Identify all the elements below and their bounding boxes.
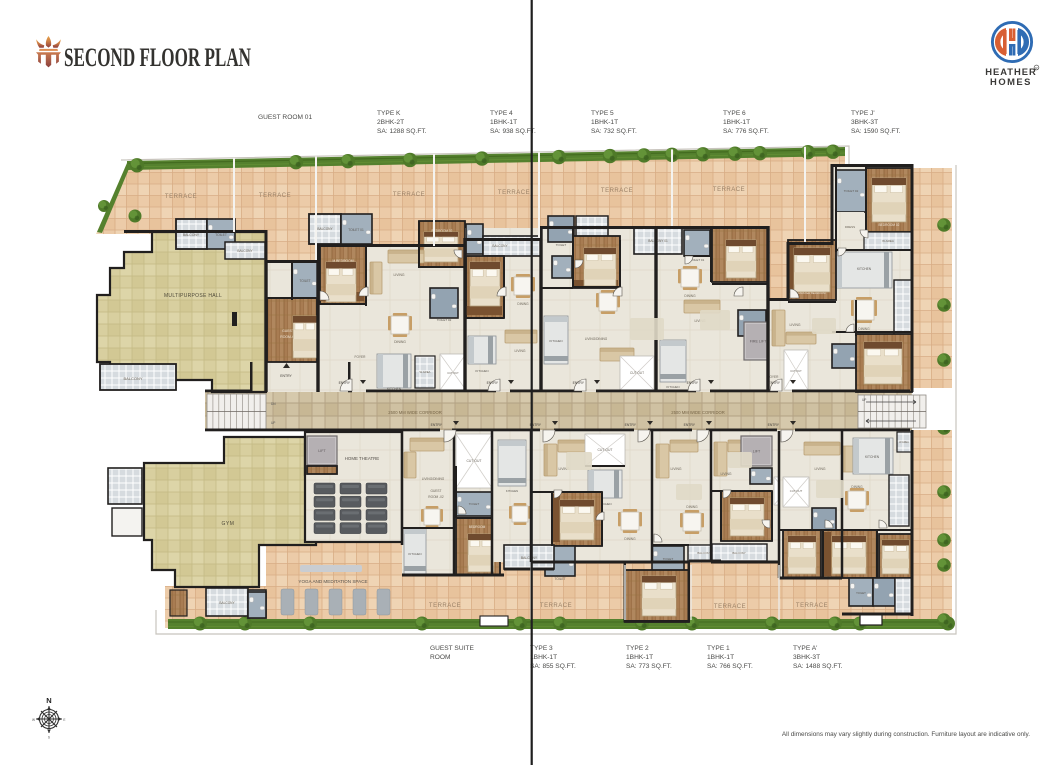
svg-text:SA: 938 SQ.FT.: SA: 938 SQ.FT. [490, 128, 536, 135]
svg-text:GUEST SUITE: GUEST SUITE [430, 645, 474, 652]
svg-text:TOILET 01: TOILET 01 [348, 228, 364, 232]
svg-text:W.AREA: W.AREA [899, 441, 909, 444]
svg-text:ROOM: ROOM [430, 654, 451, 661]
svg-text:TYPE A': TYPE A' [793, 645, 817, 652]
svg-text:TYPE 2: TYPE 2 [626, 645, 649, 652]
svg-text:TOILET 02: TOILET 02 [844, 189, 859, 193]
svg-text:ENTRY: ENTRY [687, 381, 699, 385]
svg-text:GYM: GYM [222, 521, 235, 527]
svg-text:GUEST: GUEST [431, 489, 442, 493]
svg-text:DINING: DINING [858, 327, 870, 331]
svg-text:BALCONY: BALCONY [521, 556, 538, 560]
svg-text:1BHK-1T: 1BHK-1T [626, 654, 653, 661]
svg-text:TERRACE: TERRACE [796, 603, 828, 609]
svg-text:ENTRY: ENTRY [768, 423, 780, 427]
svg-text:TERRACE: TERRACE [165, 194, 197, 200]
svg-text:CUT OUT: CUT OUT [597, 448, 612, 452]
svg-text:TOILET: TOILET [554, 577, 565, 581]
svg-text:GUEST: GUEST [282, 329, 294, 333]
svg-text:BALCONY: BALCONY [123, 376, 142, 381]
svg-text:UP: UP [271, 421, 275, 425]
svg-text:TOILET: TOILET [856, 591, 866, 595]
svg-text:LIVING: LIVING [814, 467, 825, 471]
svg-text:ENTRY: ENTRY [573, 381, 585, 385]
svg-text:SA: 1488 SQ.FT.: SA: 1488 SQ.FT. [793, 663, 843, 670]
svg-text:TYPE 3: TYPE 3 [530, 645, 553, 652]
svg-text:LIFT: LIFT [318, 449, 326, 453]
svg-text:3BHK-3T: 3BHK-3T [793, 654, 820, 661]
svg-text:ENTRY: ENTRY [684, 423, 696, 427]
svg-text:TERRACE: TERRACE [601, 188, 633, 194]
svg-text:LIVING: LIVING [789, 323, 800, 327]
svg-text:TYPE K: TYPE K [377, 110, 401, 117]
svg-text:TYPE 1: TYPE 1 [707, 645, 730, 652]
svg-text:KITCHEN: KITCHEN [865, 455, 880, 459]
svg-text:CUT OUT: CUT OUT [790, 369, 802, 373]
svg-text:SA: 776 SQ.FT.: SA: 776 SQ.FT. [723, 128, 769, 135]
svg-text:TYPE 6: TYPE 6 [723, 110, 746, 117]
svg-text:FOYER: FOYER [355, 355, 367, 359]
svg-text:TOILET: TOILET [663, 557, 674, 561]
svg-text:BALCONY: BALCONY [492, 244, 508, 248]
svg-text:TERRACE: TERRACE [713, 187, 745, 193]
svg-text:DINING: DINING [624, 537, 636, 541]
svg-text:SA: 732 SQ.FT.: SA: 732 SQ.FT. [591, 128, 637, 135]
svg-text:SA: 1288 SQ.FT.: SA: 1288 SQ.FT. [377, 128, 427, 135]
svg-text:KITCHEN: KITCHEN [857, 267, 872, 271]
svg-text:KITCHEN: KITCHEN [475, 369, 488, 373]
svg-text:BALCONY: BALCONY [697, 551, 711, 555]
svg-text:DINING: DINING [394, 340, 406, 344]
svg-text:BALCONY: BALCONY [237, 249, 253, 253]
svg-text:1BHK-1T: 1BHK-1T [723, 119, 750, 126]
svg-text:LIFT: LIFT [753, 449, 761, 453]
svg-text:TYPE 4: TYPE 4 [490, 110, 513, 117]
svg-text:DN: DN [271, 402, 276, 406]
svg-text:DINING: DINING [851, 485, 863, 489]
svg-text:YOGA AND MEDITATION SPACE: YOGA AND MEDITATION SPACE [298, 579, 367, 584]
svg-text:TYPE J': TYPE J' [851, 110, 875, 117]
svg-text:DRESS: DRESS [845, 225, 855, 229]
svg-text:TOILET: TOILET [215, 233, 227, 237]
svg-text:ENTRY: ENTRY [769, 381, 781, 385]
svg-text:KITCHEN: KITCHEN [549, 339, 562, 343]
svg-text:SECOND FLOOR PLAN: SECOND FLOOR PLAN [64, 43, 251, 72]
svg-text:CUT OUT: CUT OUT [790, 489, 803, 493]
svg-text:TOILET 02: TOILET 02 [437, 318, 452, 322]
svg-text:1BHK-1T: 1BHK-1T [530, 654, 557, 661]
svg-text:BALCONY: BALCONY [183, 233, 200, 237]
svg-text:1BHK-1T: 1BHK-1T [490, 119, 517, 126]
svg-text:TERRACE: TERRACE [540, 603, 572, 609]
svg-text:SA: 1590 SQ.FT.: SA: 1590 SQ.FT. [851, 128, 901, 135]
svg-text:TERRACE: TERRACE [498, 190, 530, 196]
svg-text:S: S [48, 736, 50, 740]
svg-text:2500 MM WIDE CORRIDOR: 2500 MM WIDE CORRIDOR [671, 410, 725, 415]
svg-text:3BHK-3T: 3BHK-3T [851, 119, 878, 126]
svg-text:BALCONY: BALCONY [317, 227, 333, 231]
svg-text:TERRACE: TERRACE [393, 192, 425, 198]
svg-text:KITCHEN: KITCHEN [506, 489, 518, 493]
svg-text:All dimensions may vary slight: All dimensions may vary slightly during … [782, 731, 1030, 738]
svg-text:SA: 773 SQ.FT.: SA: 773 SQ.FT. [626, 663, 672, 670]
svg-text:BEDROOM 02: BEDROOM 02 [879, 223, 900, 227]
svg-text:LIVING: LIVING [720, 472, 731, 476]
svg-text:ROOM -02: ROOM -02 [428, 495, 444, 499]
svg-text:BEDROOM: BEDROOM [469, 525, 486, 529]
svg-text:FIRE LIFT: FIRE LIFT [750, 339, 767, 343]
svg-text:CUT OUT: CUT OUT [466, 459, 481, 463]
svg-text:CUT OUT: CUT OUT [630, 371, 644, 375]
svg-text:ENTRY: ENTRY [431, 423, 443, 427]
svg-text:LIVING/DINING: LIVING/DINING [422, 477, 445, 481]
svg-text:1BHK-1T: 1BHK-1T [591, 119, 618, 126]
svg-text:2500 MM WIDE CORRIDOR: 2500 MM WIDE CORRIDOR [388, 410, 442, 415]
svg-text:ENTRY: ENTRY [625, 423, 637, 427]
svg-text:LIVING/DINING: LIVING/DINING [585, 337, 608, 341]
svg-text:BALCONY: BALCONY [219, 601, 235, 605]
svg-text:ENTRY: ENTRY [487, 381, 499, 385]
svg-text:TOILET: TOILET [469, 502, 480, 506]
svg-text:ENTRY: ENTRY [339, 381, 351, 385]
svg-text:UP: UP [862, 398, 866, 402]
svg-text:TOILET: TOILET [556, 243, 567, 247]
svg-text:DINING: DINING [517, 302, 529, 306]
svg-text:TYPE 5: TYPE 5 [591, 110, 614, 117]
svg-text:W.AREA: W.AREA [882, 239, 894, 243]
svg-text:DINING: DINING [686, 505, 698, 509]
svg-text:LIVING: LIVING [670, 467, 681, 471]
svg-text:W.AREA: W.AREA [420, 370, 431, 374]
svg-text:HOME THEATRE: HOME THEATRE [345, 456, 380, 461]
svg-text:BALCONY: BALCONY [732, 551, 746, 555]
svg-text:TERRACE: TERRACE [429, 603, 461, 609]
svg-text:KITCHEN: KITCHEN [666, 385, 679, 389]
svg-text:ENTRY: ENTRY [280, 374, 292, 378]
svg-text:GUEST ROOM 01: GUEST ROOM 01 [258, 114, 312, 121]
svg-text:E: E [63, 718, 65, 722]
svg-text:KITCHEN: KITCHEN [408, 552, 421, 556]
svg-text:TERRACE: TERRACE [259, 193, 291, 199]
svg-text:LIVING: LIVING [393, 273, 404, 277]
svg-text:2BHK-2T: 2BHK-2T [377, 119, 404, 126]
svg-text:TERRACE: TERRACE [714, 604, 746, 610]
svg-text:N: N [46, 696, 51, 705]
svg-text:LIVING: LIVING [514, 349, 525, 353]
svg-text:1BHK-1T: 1BHK-1T [707, 654, 734, 661]
svg-text:TOILET: TOILET [299, 279, 310, 283]
svg-text:BALCONY 01: BALCONY 01 [648, 239, 668, 243]
svg-text:SA: 855 SQ.FT.: SA: 855 SQ.FT. [530, 663, 576, 670]
svg-text:W: W [32, 718, 35, 722]
svg-text:HOMES: HOMES [990, 76, 1032, 87]
svg-text:MULTIPURPOSE HALL: MULTIPURPOSE HALL [164, 293, 222, 299]
svg-text:CUT OUT: CUT OUT [447, 371, 459, 375]
svg-text:SA: 766 SQ.FT.: SA: 766 SQ.FT. [707, 663, 753, 670]
svg-text:DINING: DINING [684, 294, 696, 298]
